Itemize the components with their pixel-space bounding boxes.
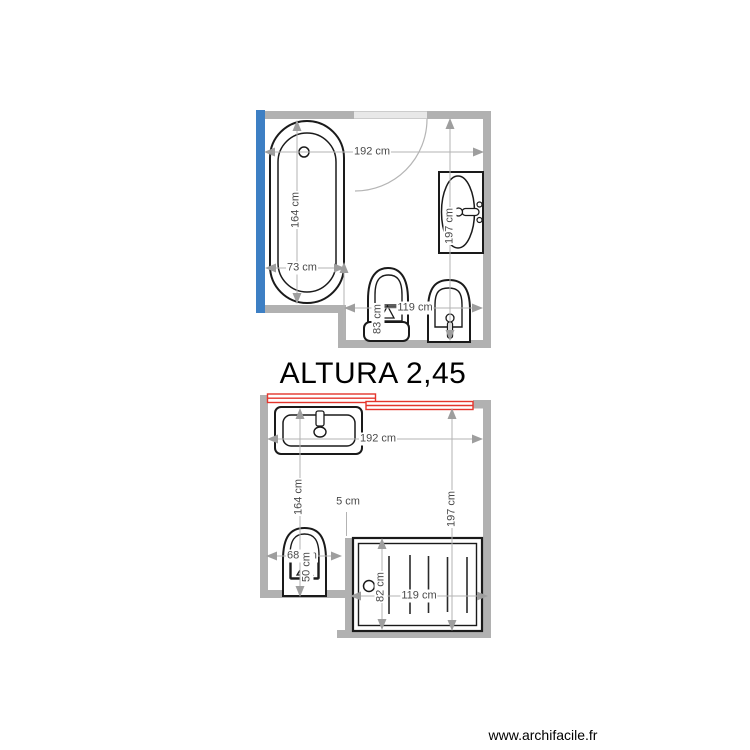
dim-label-tub-width: 73 cm	[286, 262, 318, 275]
washbasin-faucet-icon	[462, 209, 479, 216]
watermark: www.archifacile.fr	[489, 727, 598, 743]
dim-label-shower-depth: 82 cm	[375, 571, 388, 603]
dim-label-fixtures-width: 119 cm	[396, 302, 433, 315]
floor-plan-page: 192 cm 164 cm 73 cm 197 cm 119 cm 83 cm …	[0, 0, 750, 750]
vanity-faucet-icon	[316, 411, 324, 426]
dim-label-bottom-left-length: 164 cm	[293, 478, 306, 516]
dim-label-top-room-depth: 197 cm	[444, 207, 457, 245]
dim-label-gap: 5 cm	[335, 496, 361, 509]
bathtub	[270, 121, 344, 303]
dim-label-shower-width: 119 cm	[400, 590, 437, 603]
dim-label-bottom-room-depth: 197 cm	[446, 490, 459, 528]
dim-label-toilet-depth-top: 83 cm	[372, 303, 385, 335]
blue-wall	[256, 110, 265, 313]
vanity-sink	[275, 407, 362, 454]
dim-label-bottom-room-width: 192 cm	[359, 433, 397, 446]
dim-label-top-room-width: 192 cm	[353, 146, 391, 159]
altura-annotation: ALTURA 2,45	[280, 357, 467, 391]
dim-label-toilet-depth-bottom: 50 cm	[301, 551, 314, 583]
shower	[353, 538, 482, 631]
door-opening	[354, 112, 427, 119]
dim-label-tub-length: 164 cm	[290, 191, 303, 229]
